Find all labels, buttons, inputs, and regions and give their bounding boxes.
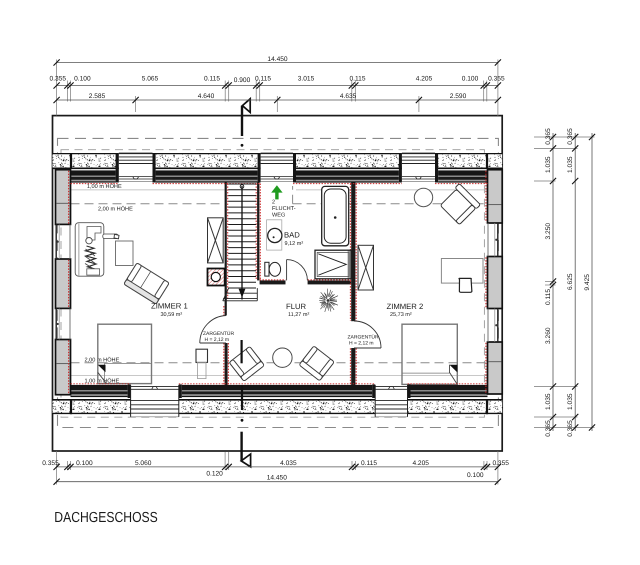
svg-text:0.100: 0.100 xyxy=(467,472,484,479)
svg-text:0.365: 0.365 xyxy=(545,420,552,437)
svg-text:0.355: 0.355 xyxy=(492,460,509,467)
svg-text:0.365: 0.365 xyxy=(567,128,574,145)
svg-text:BAD: BAD xyxy=(284,230,300,239)
svg-text:0.115: 0.115 xyxy=(204,75,220,82)
svg-text:FLUR: FLUR xyxy=(286,302,307,311)
svg-text:0.100: 0.100 xyxy=(76,460,93,467)
svg-text:1.035: 1.035 xyxy=(567,393,574,410)
svg-text:4.640: 4.640 xyxy=(198,93,215,100)
svg-text:FLUCHT-: FLUCHT- xyxy=(272,206,296,212)
svg-text:1.035: 1.035 xyxy=(545,156,552,173)
svg-text:1.035: 1.035 xyxy=(567,156,574,173)
svg-text:9.425: 9.425 xyxy=(584,274,591,291)
svg-text:H = 2,12 m: H = 2,12 m xyxy=(205,337,230,343)
svg-text:11,27 m²: 11,27 m² xyxy=(288,312,309,318)
svg-text:5.060: 5.060 xyxy=(135,460,152,467)
svg-text:ZARGENTÜR: ZARGENTÜR xyxy=(203,330,235,337)
svg-text:30,59 m²: 30,59 m² xyxy=(161,312,183,318)
svg-text:WEG: WEG xyxy=(272,213,285,219)
svg-text:6.625: 6.625 xyxy=(567,273,574,290)
svg-text:4.205: 4.205 xyxy=(412,460,429,467)
svg-text:2: 2 xyxy=(272,200,275,206)
svg-text:5.065: 5.065 xyxy=(142,75,159,82)
svg-text:2.590: 2.590 xyxy=(450,93,467,100)
svg-text:0.120: 0.120 xyxy=(206,470,223,477)
svg-text:0.355: 0.355 xyxy=(488,75,505,82)
svg-text:4.635: 4.635 xyxy=(340,93,357,100)
svg-text:3.250: 3.250 xyxy=(545,223,552,240)
svg-text:ZIMMER 2: ZIMMER 2 xyxy=(387,302,424,311)
svg-text:9,12 m²: 9,12 m² xyxy=(285,241,304,247)
svg-text:25,73 m²: 25,73 m² xyxy=(390,312,412,318)
svg-text:2,00 m HÖHE: 2,00 m HÖHE xyxy=(85,357,120,364)
svg-text:3.260: 3.260 xyxy=(545,327,552,344)
svg-text:H = 2,12 m: H = 2,12 m xyxy=(349,341,374,347)
svg-text:1,00 m HÖHE: 1,00 m HÖHE xyxy=(87,183,122,190)
svg-text:4.035: 4.035 xyxy=(280,460,297,467)
svg-text:ZIMMER 1: ZIMMER 1 xyxy=(151,302,188,311)
svg-text:0.355: 0.355 xyxy=(42,460,59,467)
svg-text:DACHGESCHOSS: DACHGESCHOSS xyxy=(54,510,158,526)
svg-text:2,00 m HÖHE: 2,00 m HÖHE xyxy=(98,205,133,212)
svg-text:0.365: 0.365 xyxy=(545,128,552,145)
svg-text:2.585: 2.585 xyxy=(89,93,106,100)
svg-text:4.205: 4.205 xyxy=(416,75,433,82)
svg-text:0.100: 0.100 xyxy=(74,75,91,82)
svg-text:0.115: 0.115 xyxy=(361,460,377,467)
svg-text:0.900: 0.900 xyxy=(234,77,251,84)
svg-text:3.015: 3.015 xyxy=(298,75,315,82)
svg-text:0.365: 0.365 xyxy=(567,420,574,437)
svg-text:0.115: 0.115 xyxy=(349,75,365,82)
svg-text:14.450: 14.450 xyxy=(267,475,288,482)
svg-text:1.035: 1.035 xyxy=(545,393,552,410)
svg-text:0.115: 0.115 xyxy=(545,289,552,305)
svg-text:0.355: 0.355 xyxy=(50,75,67,82)
svg-text:0.100: 0.100 xyxy=(462,75,479,82)
svg-text:0.115: 0.115 xyxy=(255,75,271,82)
svg-text:14.450: 14.450 xyxy=(267,56,288,63)
